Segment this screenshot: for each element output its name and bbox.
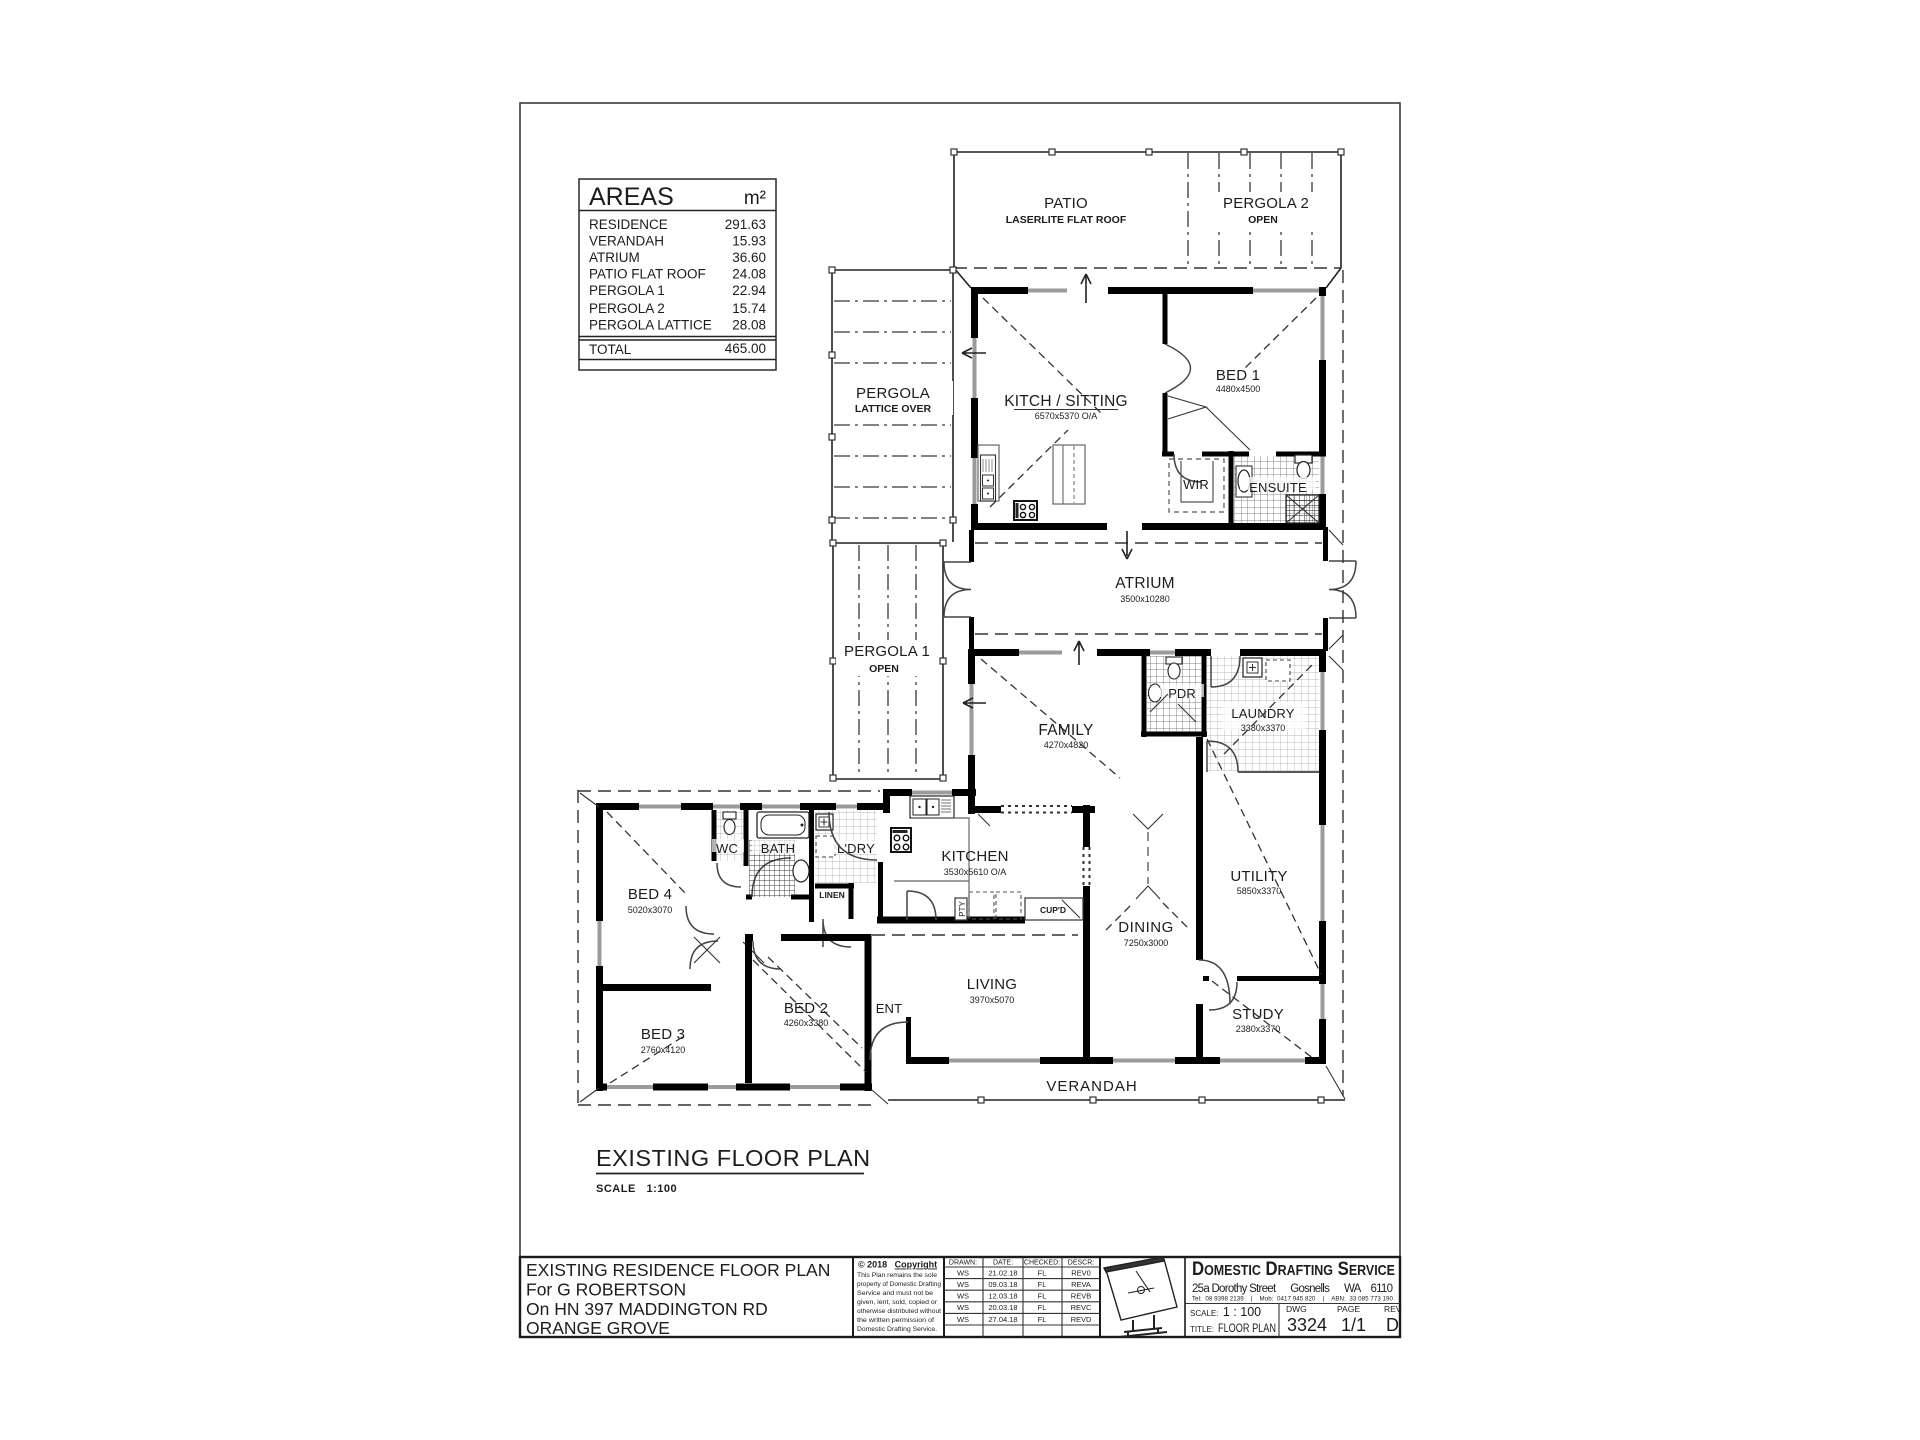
svg-text:D: D	[1386, 1315, 1399, 1335]
svg-text:PERGOLA: PERGOLA	[856, 385, 930, 402]
svg-text:LAUNDRY: LAUNDRY	[1231, 706, 1294, 721]
svg-text:DATE:: DATE:	[993, 1260, 1013, 1267]
svg-text:PTY: PTY	[958, 901, 967, 917]
svg-text:REVB: REVB	[1071, 1292, 1091, 1301]
svg-text:BED 2: BED 2	[784, 1000, 828, 1017]
svg-text:ATRIUM: ATRIUM	[589, 250, 640, 265]
svg-text:FLOOR PLAN: FLOOR PLAN	[1218, 1323, 1276, 1335]
svg-text:4270x4820: 4270x4820	[1044, 740, 1089, 750]
svg-text:4260x3380: 4260x3380	[784, 1018, 829, 1028]
svg-text:465.00: 465.00	[725, 341, 766, 356]
svg-text:STUDY: STUDY	[1232, 1006, 1284, 1023]
svg-text:© 2018 Copyright: © 2018 Copyright	[858, 1260, 937, 1270]
svg-text:REVD: REVD	[1071, 1315, 1092, 1324]
svg-text:FL: FL	[1038, 1280, 1047, 1289]
svg-text:09.03.18: 09.03.18	[988, 1280, 1017, 1289]
svg-text:property of Domestic Drafting: property of Domestic Drafting	[857, 1281, 941, 1288]
svg-text:FL: FL	[1038, 1269, 1047, 1278]
svg-text:WC: WC	[716, 841, 738, 856]
svg-text:3324: 3324	[1287, 1315, 1327, 1335]
svg-text:On HN 397 MADDINGTON RD: On HN 397 MADDINGTON RD	[526, 1299, 768, 1319]
svg-text:KITCHEN: KITCHEN	[941, 848, 1008, 865]
svg-text:FL: FL	[1038, 1303, 1047, 1312]
svg-text:ORANGE GROVE: ORANGE GROVE	[526, 1318, 670, 1338]
svg-text:3970x5070: 3970x5070	[970, 995, 1015, 1005]
svg-text:3500x10280: 3500x10280	[1120, 594, 1170, 604]
svg-text:ENSUITE: ENSUITE	[1249, 480, 1307, 495]
svg-text:24.08: 24.08	[732, 267, 766, 282]
svg-text:SCALE 1:100: SCALE 1:100	[596, 1183, 677, 1195]
svg-text:LASERLITE FLAT ROOF: LASERLITE FLAT ROOF	[1006, 214, 1127, 226]
svg-text:22.94: 22.94	[732, 283, 766, 298]
svg-text:CUP'D: CUP'D	[1040, 905, 1066, 915]
svg-text:5850x3370: 5850x3370	[1237, 886, 1282, 896]
svg-text:REV: REV	[1384, 1304, 1402, 1314]
svg-text:otherwise distributed without: otherwise distributed without	[857, 1308, 941, 1315]
svg-text:291.63: 291.63	[725, 217, 766, 232]
svg-text:DINING: DINING	[1118, 919, 1174, 936]
svg-text:PERGOLA 2: PERGOLA 2	[589, 301, 665, 316]
svg-text:VERANDAH: VERANDAH	[589, 234, 664, 249]
svg-text:FL: FL	[1038, 1315, 1047, 1324]
svg-text:DWG: DWG	[1286, 1304, 1307, 1314]
svg-text:the written permission of: the written permission of	[857, 1317, 934, 1324]
svg-text:BATH: BATH	[761, 841, 796, 856]
svg-text:ENT: ENT	[876, 1001, 903, 1016]
svg-text:BED 4: BED 4	[628, 886, 672, 903]
svg-text:REV0: REV0	[1071, 1269, 1091, 1278]
svg-text:For G ROBERTSON: For G ROBERTSON	[526, 1280, 686, 1300]
svg-text:L'DRY: L'DRY	[837, 841, 875, 856]
svg-text:PERGOLA 1: PERGOLA 1	[844, 643, 930, 660]
svg-text:WS: WS	[957, 1269, 969, 1278]
svg-text:LIVING: LIVING	[967, 976, 1017, 993]
svg-text:m²: m²	[744, 188, 766, 209]
svg-text:PDR: PDR	[1168, 686, 1195, 701]
svg-text:Service and must not be: Service and must not be	[857, 1290, 933, 1297]
svg-text:6570x5370 O/A: 6570x5370 O/A	[1035, 411, 1098, 421]
svg-text:PAGE: PAGE	[1337, 1304, 1360, 1314]
svg-text:WS: WS	[957, 1315, 969, 1324]
svg-text:DRAWN:: DRAWN:	[949, 1260, 977, 1267]
svg-text:UTILITY: UTILITY	[1230, 868, 1287, 885]
svg-text:27.04.18: 27.04.18	[988, 1315, 1017, 1324]
svg-text:3380x3370: 3380x3370	[1241, 723, 1286, 733]
svg-text:CHECKED:: CHECKED:	[1024, 1260, 1060, 1267]
svg-text:25a Dorothy Street Gosnel: 25a Dorothy Street Gosnells WA 6110	[1192, 1283, 1393, 1295]
svg-text:EXISTING FLOOR PLAN: EXISTING FLOOR PLAN	[596, 1145, 871, 1171]
svg-text:1/1: 1/1	[1341, 1315, 1366, 1335]
svg-text:given, lent, sold, copied or: given, lent, sold, copied or	[857, 1299, 938, 1306]
svg-text:EXISTING RESIDENCE FLOOR PLAN: EXISTING RESIDENCE FLOOR PLAN	[526, 1260, 830, 1280]
svg-text:TITLE:: TITLE:	[1190, 1325, 1214, 1334]
svg-text:12.03.18: 12.03.18	[988, 1292, 1017, 1301]
svg-text:4480x4500: 4480x4500	[1216, 384, 1261, 394]
svg-text:WIR: WIR	[1183, 477, 1209, 492]
svg-text:WS: WS	[957, 1303, 969, 1312]
svg-text:FAMILY: FAMILY	[1038, 722, 1093, 739]
svg-text:PATIO FLAT ROOF: PATIO FLAT ROOF	[589, 267, 706, 282]
svg-text:28.08: 28.08	[732, 318, 766, 333]
svg-text:2380x3370: 2380x3370	[1236, 1024, 1281, 1034]
svg-text:36.60: 36.60	[732, 250, 766, 265]
svg-text:Tel: 08 9398 2139 | Mob: Tel: 08 9398 2139 | Mob: 0417 945 820 | …	[1192, 1296, 1394, 1303]
svg-text:2760x4120: 2760x4120	[641, 1045, 686, 1055]
svg-text:DESCR:: DESCR:	[1068, 1260, 1095, 1267]
svg-text:PERGOLA LATTICE: PERGOLA LATTICE	[589, 318, 712, 333]
svg-text:LINEN: LINEN	[819, 890, 845, 900]
svg-text:This Plan remains the sole: This Plan remains the sole	[857, 1272, 937, 1279]
svg-text:OPEN: OPEN	[869, 663, 899, 675]
svg-text:ATRIUM: ATRIUM	[1115, 575, 1174, 592]
svg-text:LATTICE OVER: LATTICE OVER	[855, 403, 932, 415]
svg-text:TOTAL: TOTAL	[589, 342, 632, 357]
svg-text:WS: WS	[957, 1280, 969, 1289]
svg-text:15.93: 15.93	[732, 234, 766, 249]
svg-text:REVA: REVA	[1071, 1280, 1091, 1289]
svg-text:FL: FL	[1038, 1292, 1047, 1301]
svg-text:WS: WS	[957, 1292, 969, 1301]
svg-text:KITCH / SITTING: KITCH / SITTING	[1004, 393, 1128, 410]
svg-text:BED 1: BED 1	[1216, 367, 1260, 384]
svg-text:RESIDENCE: RESIDENCE	[589, 217, 668, 232]
svg-text:PATIO: PATIO	[1044, 195, 1088, 212]
svg-text:21.02.18: 21.02.18	[988, 1269, 1017, 1278]
svg-text:5020x3070: 5020x3070	[628, 905, 673, 915]
svg-text:Domestic Drafting Service.: Domestic Drafting Service.	[857, 1326, 937, 1333]
svg-text:VERANDAH: VERANDAH	[1046, 1078, 1137, 1095]
svg-text:3530x5610 O/A: 3530x5610 O/A	[944, 867, 1007, 877]
svg-text:PERGOLA 2: PERGOLA 2	[1223, 195, 1309, 212]
svg-text:BED 3: BED 3	[641, 1026, 685, 1043]
svg-text:7250x3000: 7250x3000	[1124, 938, 1169, 948]
svg-text:PERGOLA 1: PERGOLA 1	[589, 283, 665, 298]
svg-text:REVC: REVC	[1071, 1303, 1092, 1312]
svg-text:OPEN: OPEN	[1248, 214, 1278, 226]
svg-text:15.74: 15.74	[732, 301, 766, 316]
svg-text:AREAS: AREAS	[589, 183, 674, 211]
svg-text:20.03.18: 20.03.18	[988, 1303, 1017, 1312]
